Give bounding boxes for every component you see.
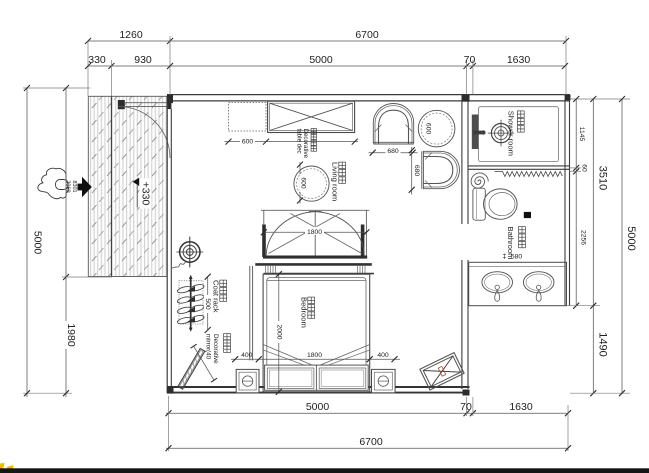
svg-text:1145: 1145 — [578, 127, 585, 142]
svg-text:2256: 2256 — [580, 230, 587, 245]
svg-text:5000: 5000 — [309, 54, 333, 66]
svg-text:Living room: Living room — [330, 162, 339, 201]
svg-text:580: 580 — [511, 254, 523, 261]
svg-text:70: 70 — [460, 401, 472, 413]
svg-text:5000: 5000 — [625, 226, 637, 250]
svg-text:Shower room: Shower room — [507, 111, 516, 156]
svg-text:Coat rack: Coat rack — [211, 280, 220, 313]
svg-text:330: 330 — [88, 54, 106, 66]
svg-text:400: 400 — [241, 352, 253, 359]
svg-text:1490: 1490 — [597, 332, 609, 356]
svg-text:+330: +330 — [140, 182, 152, 206]
svg-text:table dec: table dec — [295, 129, 302, 154]
svg-text:8301: 8301 — [71, 180, 77, 192]
svg-text:3069: 3069 — [65, 180, 71, 192]
svg-text:Decorative: Decorative — [212, 334, 219, 364]
svg-text:3510: 3510 — [597, 166, 609, 190]
svg-text:6700: 6700 — [355, 29, 379, 41]
svg-text:5000: 5000 — [306, 401, 330, 413]
svg-text:60: 60 — [581, 164, 588, 172]
svg-text:2000: 2000 — [276, 324, 283, 339]
svg-text:680: 680 — [387, 148, 399, 155]
svg-text:600: 600 — [300, 177, 307, 189]
svg-text:1630: 1630 — [507, 54, 531, 66]
svg-text:6700: 6700 — [359, 436, 383, 448]
svg-text:mirror(40: mirror(40 — [204, 334, 211, 360]
svg-text:1980: 1980 — [65, 323, 77, 347]
svg-text:600: 600 — [425, 123, 432, 135]
svg-text:400: 400 — [377, 352, 389, 359]
svg-text:70: 70 — [464, 54, 476, 66]
svg-text:Bedroom: Bedroom — [299, 297, 308, 328]
svg-text:600: 600 — [242, 139, 254, 146]
svg-text:1800: 1800 — [307, 352, 322, 359]
svg-text:680: 680 — [413, 165, 420, 177]
svg-text:500: 500 — [204, 298, 211, 310]
svg-text:5000: 5000 — [32, 231, 44, 255]
svg-text:1630: 1630 — [509, 401, 533, 413]
svg-text:1260: 1260 — [119, 29, 143, 41]
svg-text:1800: 1800 — [307, 229, 322, 236]
svg-text:930: 930 — [134, 54, 152, 66]
